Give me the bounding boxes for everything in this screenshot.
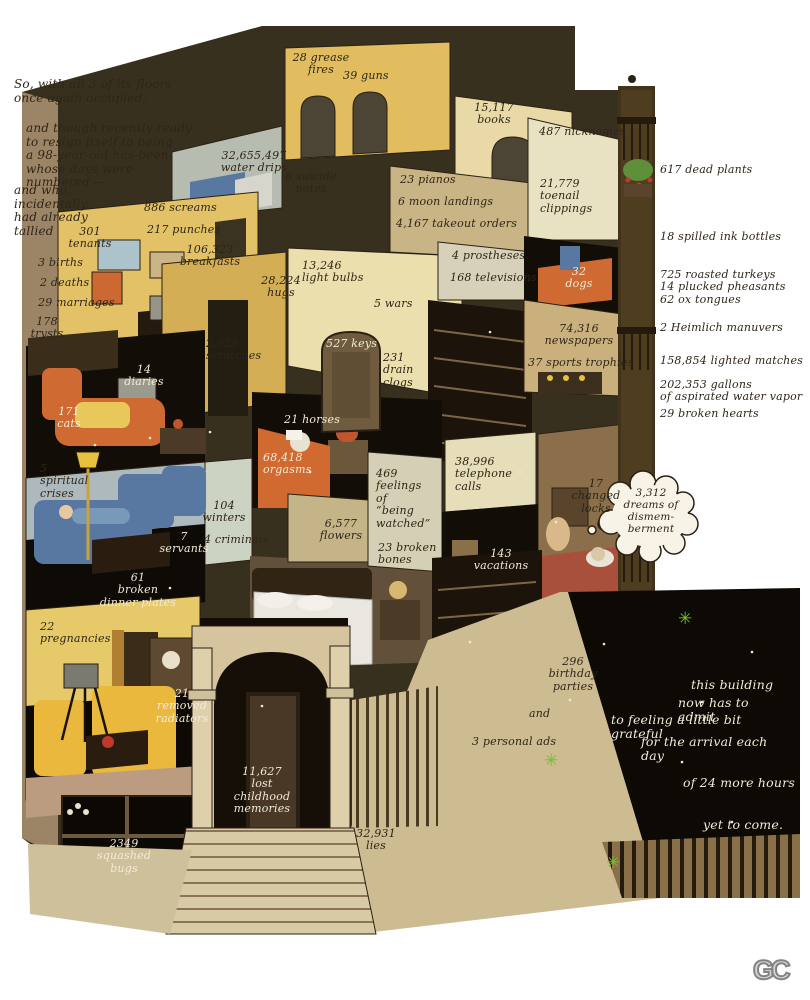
annotation-cats: 171 cats [48,406,90,431]
annotation-orgasms: 68,418 orgasms [263,452,321,477]
annotation-light-bulbs: 13,246 light bulbs [302,260,372,285]
annotation-servants: 7 servants [156,531,212,556]
annotation-grateful-1: this building [691,678,781,692]
annotation-hugs: 28,224 hugs [253,275,309,300]
annotation-wars: 5 wars [374,298,424,310]
annotation-books: 15,117 books [470,102,518,127]
annotation-screams: 886 screams [144,202,234,214]
annotation-telephone-calls: 38,996 telephone calls [455,456,540,493]
annotation-changed-locks: 17 changed locks [568,478,624,515]
annotation-televisions: 168 televisions [450,272,550,284]
annotation-broken-bones: 23 broken bones [378,542,444,567]
annotation-intro-1: So, with all 3 of its floors once again … [14,78,214,105]
annotation-winters: 104 winters [198,500,250,525]
annotation-horses: 21 horses [284,414,350,426]
annotation-toenail-clippings: 21,779 toenail clippings [540,178,598,215]
annotation-breakfasts: 106,323 breakfasts [178,244,242,269]
annotation-flowers: 6,577 flowers [313,518,369,543]
annotation-removed-radiators: 21 removed radiators [148,688,216,725]
annotations-layer: So, with all 3 of its floors once again … [0,0,810,1000]
annotation-spilled-ink-bottles: 18 spilled ink bottles [660,231,800,243]
annotation-lighted-matches: 158,854 lighted matches [660,355,810,367]
annotation-water-drips: 32,655,497 water drips [218,150,290,175]
annotation-broken-hearts: 29 broken hearts [660,408,790,420]
annotation-grateful-4: for the arrival each day [641,735,791,763]
annotation-grateful-6: yet to come. [703,818,803,832]
annotation-dreams-of-dismemberment: 3,312 dreams of dismem- berment [620,488,682,535]
annotation-trysts: 178 trysts [26,316,68,341]
annotation-roasted-turkeys: 725 roasted turkeys 14 plucked pheasants… [660,269,805,306]
annotation-dogs: 32 dogs [562,266,596,291]
annotation-feelings-watched: 469 feelings of “being watched” [376,468,434,530]
annotation-marriages: 29 marriages [38,297,128,309]
annotation-scratches: 2,325 scratches [206,338,268,363]
annotation-newspapers: 74,316 newspapers [543,323,615,348]
annotation-lies: 32,931 lies [350,828,402,853]
annotation-tenants: 301 tenants [66,226,114,251]
annotation-lost-childhood-memories: 11,627 lost childhood memories [222,766,302,816]
artist-monogram: GC [753,955,788,986]
building-stories-illustration: ✳ ✳ ✳ So, with all 3 of its floors once … [0,0,810,1000]
annotation-intro-2: and though recently ready to resign itse… [26,122,216,190]
annotation-vacations: 143 vacations [470,548,532,573]
annotation-moon-landings: 6 moon landings [398,196,508,208]
annotation-spiritual-crises: 5 spiritual crises [40,463,100,500]
annotation-personal-ads: 3 personal ads [472,736,572,748]
annotation-dead-plants: 617 dead plants [660,164,790,176]
annotation-criminals: 4 criminals [204,534,279,546]
annotation-keys: 527 keys [326,338,386,350]
annotation-births: 3 births [38,257,98,269]
annotation-and: and [529,708,569,720]
annotation-punches: 217 punches [147,224,237,236]
annotation-pianos: 23 pianos [400,174,480,186]
annotation-suicide-notes: 6 suicide notes [283,171,339,196]
annotation-broken-dinner-plates: 61 broken dinner plates [96,572,180,609]
annotation-water-vapor: 202,353 gallons of aspirated water vapor [660,379,810,404]
annotation-diaries: 14 diaries [120,364,168,389]
annotation-heimlich-manuvers: 2 Heimlich manuvers [660,322,810,334]
annotation-drain-clogs: 231 drain clogs [383,352,423,389]
annotation-guns: 39 guns [343,70,403,82]
annotation-prostheses: 4 prostheses [452,250,542,262]
annotation-sports-trophies: 37 sports trophies [528,357,648,369]
annotation-grateful-5: of 24 more hours [683,776,803,790]
annotation-takeout-orders: 4,167 takeout orders [396,218,526,230]
annotation-birthday-parties: 296 birthday parties [548,656,598,693]
annotation-deaths: 2 deaths [40,277,100,289]
annotation-squashed-bugs: 2349 squashed bugs [90,838,158,875]
annotation-pregnancies: 22 pregnancies [40,621,130,646]
annotation-nicknames: 487 nicknames [539,126,634,138]
